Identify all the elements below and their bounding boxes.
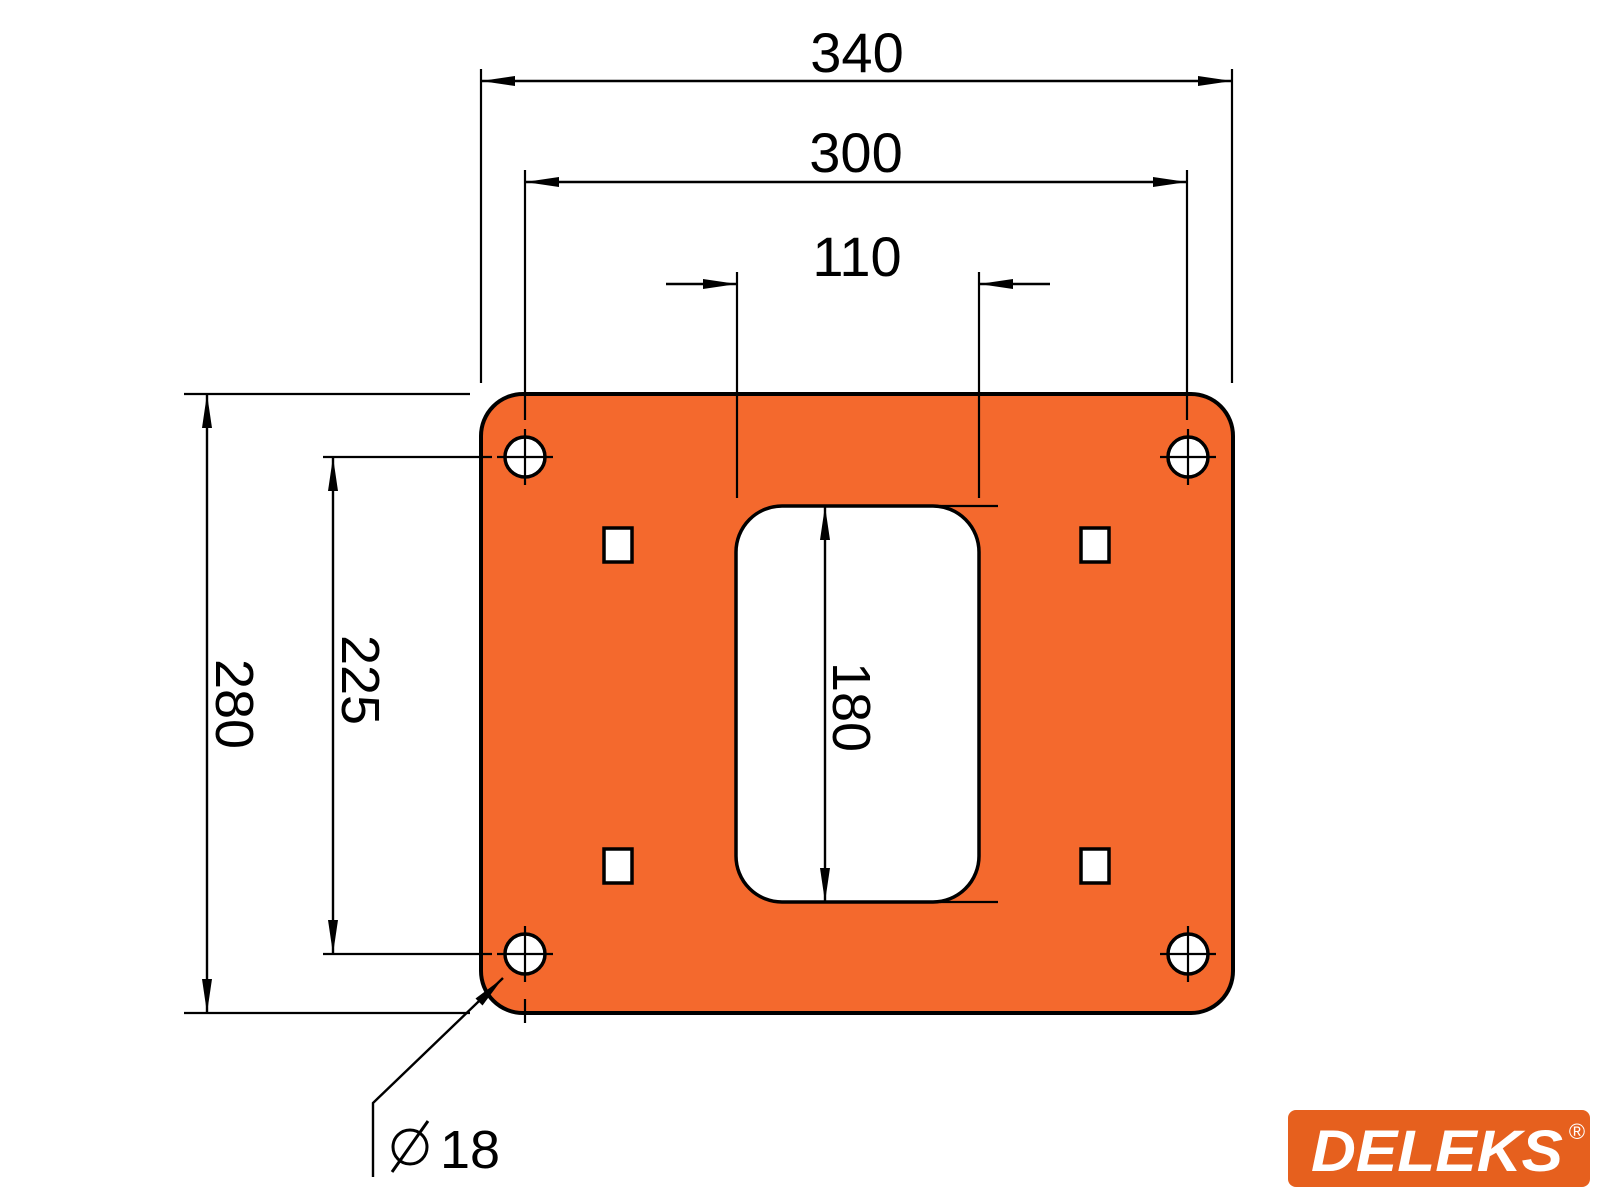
dimension-value-225: 225 — [330, 635, 390, 725]
dimension-value-110: 110 — [812, 225, 901, 288]
arrowhead-top — [328, 457, 338, 491]
arrowhead-bottom — [328, 920, 338, 954]
dimension-value-340: 340 — [810, 21, 903, 84]
arrowhead-right — [1153, 177, 1187, 187]
arrowhead-left — [525, 177, 559, 187]
hole-diameter-value: 18 — [440, 1120, 500, 1180]
dimension-value-280: 280 — [204, 659, 264, 749]
drawing-canvas: 340 300 110 280 225 — [0, 0, 1600, 1200]
arrowhead-top — [202, 394, 212, 428]
arrowhead-bottom — [202, 979, 212, 1013]
dimension-hole-pitch-vertical: 225 — [323, 457, 492, 954]
dimension-overall-width: 340 — [481, 21, 1232, 383]
arrowhead-left — [703, 279, 737, 289]
technical-drawing: 340 300 110 280 225 — [0, 0, 1600, 1200]
arrowhead-right — [1198, 76, 1232, 86]
square-hole-top-left — [604, 528, 632, 562]
leader-hole-diameter: 18 — [373, 978, 503, 1180]
registered-trademark-icon: ® — [1569, 1119, 1585, 1144]
dimension-value-180: 180 — [821, 662, 881, 752]
square-hole-top-right — [1081, 528, 1109, 562]
arrowhead-left — [481, 76, 515, 86]
logo-text: DELEKS — [1311, 1119, 1563, 1184]
square-hole-bottom-right — [1081, 849, 1109, 883]
dimension-overall-height: 280 — [184, 394, 470, 1013]
diameter-symbol-icon — [392, 1121, 428, 1172]
brand-logo: DELEKS ® — [1288, 1110, 1590, 1187]
arrowhead-right — [979, 279, 1013, 289]
dimension-value-300: 300 — [809, 121, 902, 184]
square-hole-bottom-left — [604, 849, 632, 883]
